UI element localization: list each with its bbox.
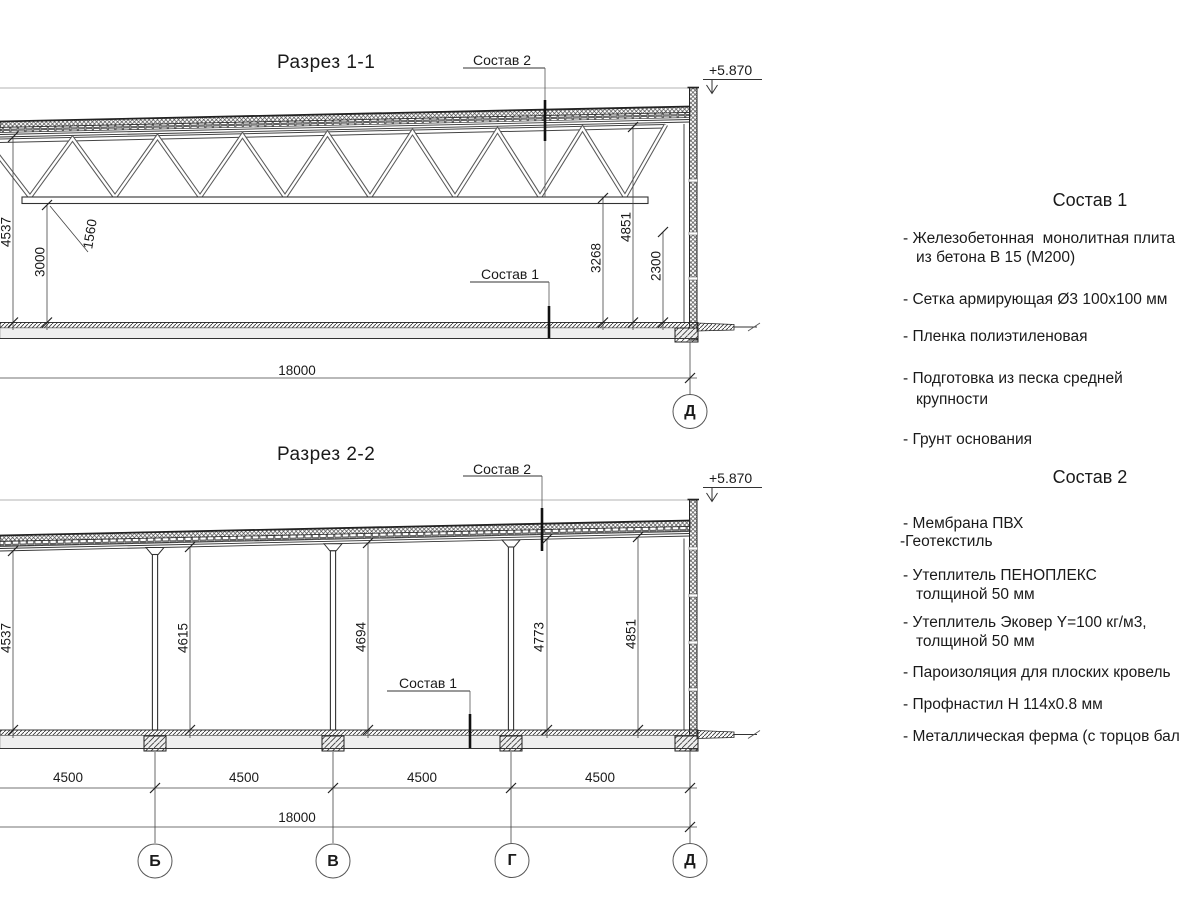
note-item: - Утеплитель ПЕНОПЛЕКС bbox=[903, 567, 1097, 585]
section1-title: Разрез 1-1 bbox=[277, 52, 375, 74]
section2-dim-4851: 4851 bbox=[624, 619, 639, 649]
drawing-sheet: Разрез 1-1 Состав 2 Состав 1 +5.870 4537… bbox=[0, 0, 1200, 900]
section-1-linework bbox=[0, 68, 762, 342]
section1-dim-2300: 2300 bbox=[649, 251, 664, 281]
section1-elevation-mark: +5.870 bbox=[709, 62, 752, 78]
section1-axis-d: Д bbox=[673, 403, 707, 421]
section1-dim-3268: 3268 bbox=[589, 243, 604, 273]
section2-dim-4694: 4694 bbox=[354, 622, 369, 652]
section1-dim-4537: 4537 bbox=[0, 217, 14, 247]
section2-axis-b: Б bbox=[138, 853, 172, 871]
section1-dim-3000: 3000 bbox=[33, 247, 48, 277]
section2-dim-bay2: 4500 bbox=[219, 770, 269, 785]
note-item: - Пленка полиэтиленовая bbox=[903, 328, 1088, 346]
note-item: из бетона В 15 (М200) bbox=[916, 249, 1075, 267]
note-item: крупности bbox=[916, 391, 988, 409]
note-item: - Подготовка из песка средней bbox=[903, 370, 1123, 388]
section2-dim-4615: 4615 bbox=[176, 623, 191, 653]
section2-callout-sostav2: Состав 2 bbox=[460, 461, 544, 477]
section1-dim-span: 18000 bbox=[272, 363, 322, 378]
section2-callout-sostav1: Состав 1 bbox=[386, 675, 470, 691]
section-1-dimensions bbox=[0, 122, 707, 429]
section2-dim-bay3: 4500 bbox=[397, 770, 447, 785]
note-item: - Металлическая ферма (с торцов бал bbox=[903, 728, 1180, 746]
note-item: - Сетка армирующая Ø3 100х100 мм bbox=[903, 291, 1167, 309]
section2-axis-g: Г bbox=[495, 852, 529, 870]
section2-elevation-mark: +5.870 bbox=[709, 470, 752, 486]
section1-callout-sostav1: Состав 1 bbox=[468, 266, 552, 282]
section2-dim-4773: 4773 bbox=[532, 622, 547, 652]
section2-dim-bay1: 4500 bbox=[43, 770, 93, 785]
section2-dim-span: 18000 bbox=[272, 810, 322, 825]
section-2-linework bbox=[0, 476, 762, 751]
section1-callout-sostav2: Состав 2 bbox=[460, 52, 544, 68]
note-item: - Профнастил Н 114х0.8 мм bbox=[903, 696, 1103, 714]
note-item: толщиной 50 мм bbox=[916, 633, 1035, 651]
note-item: - Грунт основания bbox=[903, 431, 1032, 449]
section2-dim-4537: 4537 bbox=[0, 623, 14, 653]
note-item: толщиной 50 мм bbox=[916, 586, 1035, 604]
note-item: - Железобетонная монолитная плита bbox=[903, 230, 1175, 248]
section2-dim-bay4: 4500 bbox=[575, 770, 625, 785]
note-item: - Пароизоляция для плоских кровель bbox=[903, 664, 1171, 682]
note-item: -Геотекстиль bbox=[900, 533, 993, 551]
notes-sostav1-title: Состав 1 bbox=[980, 190, 1200, 211]
note-item: - Утеплитель Эковер Y=100 кг/м3, bbox=[903, 614, 1147, 632]
section1-dim-4851: 4851 bbox=[619, 212, 634, 242]
note-item: - Мембрана ПВХ bbox=[903, 515, 1023, 533]
section-2-dimensions bbox=[0, 532, 707, 878]
notes-sostav2-title: Состав 2 bbox=[980, 467, 1200, 488]
section2-title: Разрез 2-2 bbox=[277, 444, 375, 466]
section2-axis-d: Д bbox=[673, 852, 707, 870]
section2-axis-v: В bbox=[316, 853, 350, 871]
section-drawing-canvas bbox=[0, 0, 1200, 900]
